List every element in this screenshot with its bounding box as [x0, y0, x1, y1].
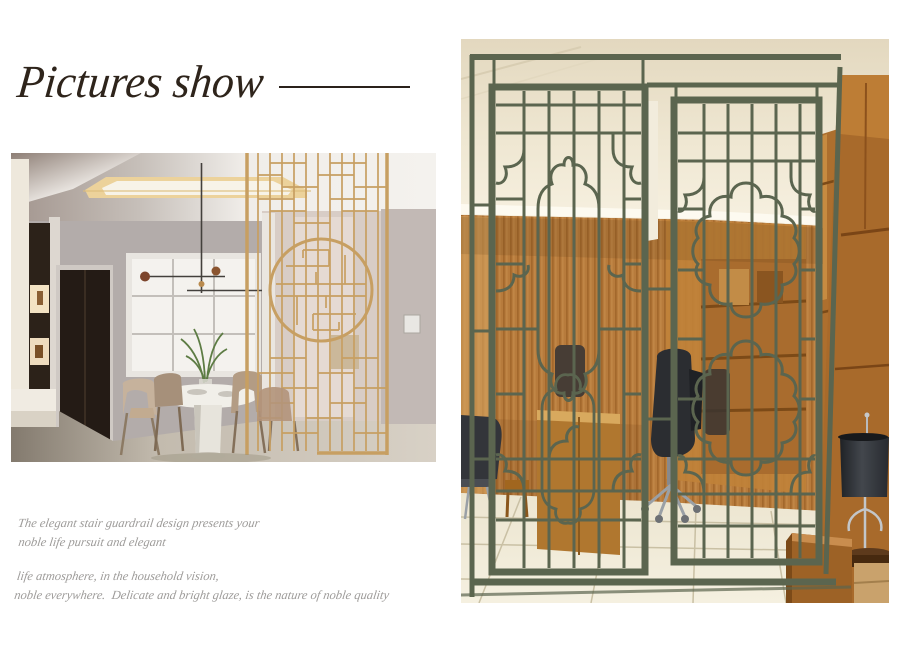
svg-text:Pictures show: Pictures show — [14, 56, 267, 107]
